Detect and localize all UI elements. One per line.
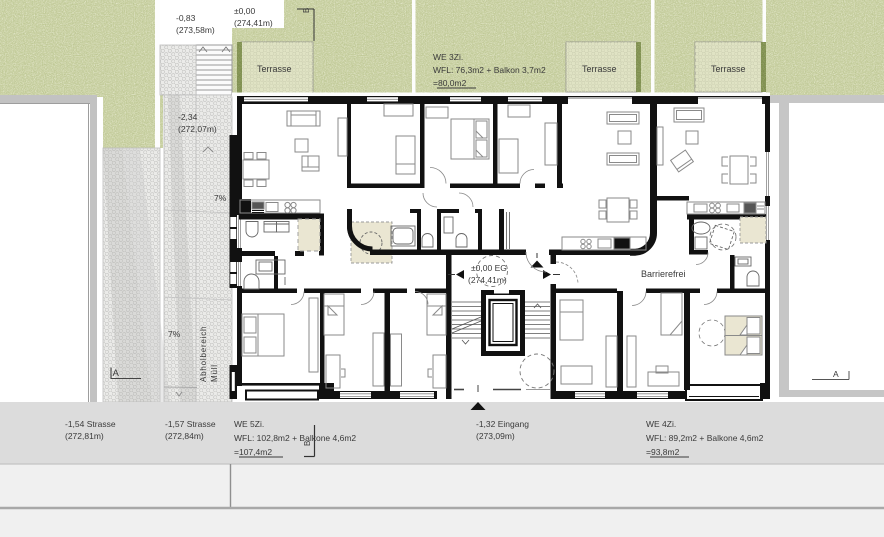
svg-text:=80,0m2: =80,0m2 (433, 78, 467, 88)
svg-text:A: A (833, 369, 839, 379)
svg-text:=107,4m2: =107,4m2 (234, 447, 272, 457)
svg-text:-1,54 Strasse: -1,54 Strasse (65, 419, 116, 429)
svg-text:-1,32 Eingang: -1,32 Eingang (476, 419, 529, 429)
svg-text:=93,8m2: =93,8m2 (646, 447, 680, 457)
svg-text:Abholbereich: Abholbereich (199, 326, 208, 382)
svg-text:WE 4Zi.: WE 4Zi. (646, 419, 676, 429)
svg-text:-0,83: -0,83 (176, 13, 196, 23)
svg-text:WFL: 102,8m2 + Balkone 4,6m2: WFL: 102,8m2 + Balkone 4,6m2 (234, 433, 356, 443)
svg-text:Barrierefrei: Barrierefrei (641, 269, 686, 279)
svg-text:Terrasse: Terrasse (257, 64, 292, 74)
svg-text:7%: 7% (214, 193, 227, 203)
svg-text:(272,84m): (272,84m) (165, 431, 204, 441)
svg-text:(272,07m): (272,07m) (178, 124, 217, 134)
svg-text:7%: 7% (168, 329, 181, 339)
svg-text:(274,41m): (274,41m) (234, 18, 273, 28)
svg-text:WE 3Zi.: WE 3Zi. (433, 52, 463, 62)
svg-text:-2,34: -2,34 (178, 112, 198, 122)
svg-text:Terrasse: Terrasse (711, 64, 746, 74)
svg-text:±0,00: ±0,00 (234, 6, 255, 16)
svg-text:(273,09m): (273,09m) (476, 431, 515, 441)
svg-text:Terrasse: Terrasse (582, 64, 617, 74)
svg-text:A: A (113, 368, 120, 379)
svg-text:B: B (302, 8, 311, 13)
svg-text:WE 5Zi.: WE 5Zi. (234, 419, 264, 429)
svg-text:(272,81m): (272,81m) (65, 431, 104, 441)
svg-text:WFL: 76,3m2 + Balkon 3,7m2: WFL: 76,3m2 + Balkon 3,7m2 (433, 65, 546, 75)
svg-text:Müll: Müll (210, 364, 219, 382)
svg-text:(273,58m): (273,58m) (176, 25, 215, 35)
svg-text:B: B (303, 441, 312, 446)
svg-text:WFL: 89,2m2 + Balkone 4,6m2: WFL: 89,2m2 + Balkone 4,6m2 (646, 433, 764, 443)
svg-text:-1,57 Strasse: -1,57 Strasse (165, 419, 216, 429)
